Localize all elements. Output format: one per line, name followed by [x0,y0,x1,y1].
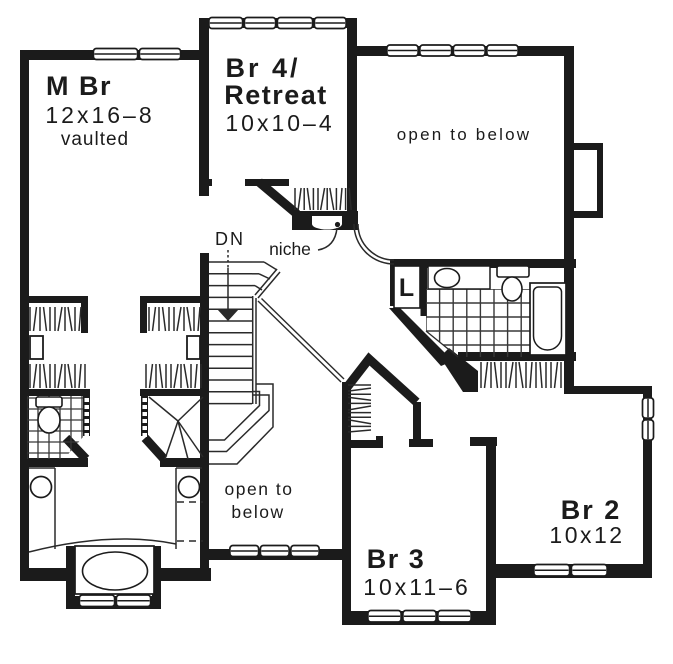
svg-text:DN: DN [215,229,245,249]
svg-text:open to: open to [225,479,294,499]
svg-text:below: below [231,502,284,522]
svg-text:Br 4/: Br 4/ [225,53,300,83]
svg-text:10x12: 10x12 [549,522,624,548]
svg-text:Br 3: Br 3 [367,544,426,574]
svg-text:vaulted: vaulted [61,129,129,150]
svg-text:10x11–6: 10x11–6 [363,574,471,600]
svg-text:10x10–4: 10x10–4 [225,110,334,136]
svg-text:Retreat: Retreat [224,80,328,110]
svg-text:Br 2: Br 2 [561,495,622,525]
svg-text:M Br: M Br [46,71,112,101]
svg-text:12x16–8: 12x16–8 [45,102,154,128]
svg-text:open to below: open to below [397,125,531,144]
svg-text:niche: niche [269,239,311,259]
svg-text:L: L [399,274,414,302]
